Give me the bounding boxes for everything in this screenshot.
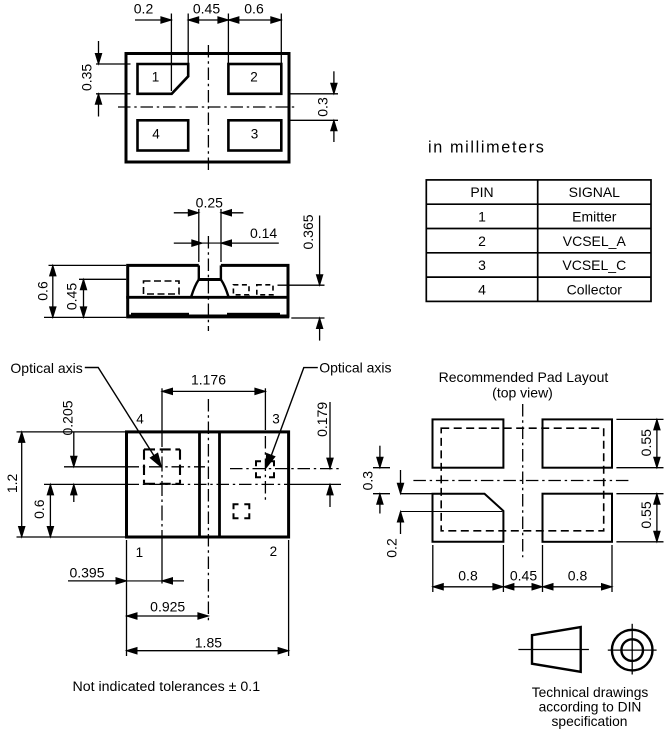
svg-text:4: 4 [136, 412, 144, 427]
svg-text:(top view): (top view) [492, 385, 553, 401]
svg-text:3: 3 [478, 257, 486, 273]
svg-text:0.2: 0.2 [134, 1, 154, 17]
svg-text:1.85: 1.85 [195, 634, 222, 650]
svg-text:0.45: 0.45 [193, 1, 220, 17]
svg-text:4: 4 [152, 127, 160, 142]
svg-text:0.365: 0.365 [300, 214, 316, 249]
svg-text:according to DIN: according to DIN [539, 700, 642, 715]
svg-text:1: 1 [478, 209, 486, 225]
svg-text:0.8: 0.8 [458, 568, 478, 584]
svg-text:0.205: 0.205 [60, 400, 76, 435]
svg-text:2: 2 [250, 70, 258, 85]
svg-text:in millimeters: in millimeters [428, 138, 546, 156]
svg-text:Not indicated tolerances ± 0.1: Not indicated tolerances ± 0.1 [73, 679, 261, 695]
svg-text:Emitter: Emitter [572, 209, 617, 225]
svg-text:0.25: 0.25 [196, 195, 223, 211]
svg-text:VCSEL_C: VCSEL_C [562, 257, 626, 273]
svg-text:0.925: 0.925 [150, 599, 185, 615]
svg-text:0.55: 0.55 [638, 429, 654, 456]
svg-text:4: 4 [478, 281, 486, 297]
svg-text:Technical drawings: Technical drawings [532, 685, 649, 700]
svg-text:Optical axis: Optical axis [319, 359, 391, 375]
svg-text:1.2: 1.2 [4, 473, 20, 493]
svg-text:0.6: 0.6 [35, 281, 51, 301]
svg-text:2: 2 [478, 233, 486, 249]
svg-text:0.14: 0.14 [250, 225, 277, 241]
svg-text:1: 1 [136, 545, 144, 560]
svg-text:3: 3 [272, 412, 280, 427]
svg-text:Optical axis: Optical axis [10, 360, 82, 376]
svg-text:0.45: 0.45 [510, 568, 537, 584]
svg-text:0.2: 0.2 [384, 538, 400, 558]
svg-text:PIN: PIN [470, 184, 493, 200]
svg-text:0.6: 0.6 [31, 499, 47, 519]
svg-text:1: 1 [152, 70, 160, 85]
svg-text:Recommended Pad Layout: Recommended Pad Layout [439, 369, 609, 385]
svg-text:0.55: 0.55 [638, 501, 654, 528]
svg-text:SIGNAL: SIGNAL [569, 184, 621, 200]
svg-text:0.45: 0.45 [64, 283, 80, 310]
svg-text:0.3: 0.3 [360, 471, 376, 491]
svg-text:1.176: 1.176 [191, 372, 226, 388]
svg-text:specification: specification [552, 714, 628, 729]
svg-text:VCSEL_A: VCSEL_A [563, 233, 627, 249]
svg-text:0.35: 0.35 [79, 64, 95, 91]
svg-text:3: 3 [251, 127, 259, 142]
svg-text:0.6: 0.6 [244, 1, 264, 17]
svg-text:0.3: 0.3 [315, 97, 331, 117]
svg-text:0.395: 0.395 [69, 565, 104, 581]
svg-text:0.8: 0.8 [568, 568, 588, 584]
svg-text:Collector: Collector [567, 281, 623, 297]
svg-text:0.179: 0.179 [314, 402, 330, 437]
svg-text:2: 2 [270, 544, 278, 559]
